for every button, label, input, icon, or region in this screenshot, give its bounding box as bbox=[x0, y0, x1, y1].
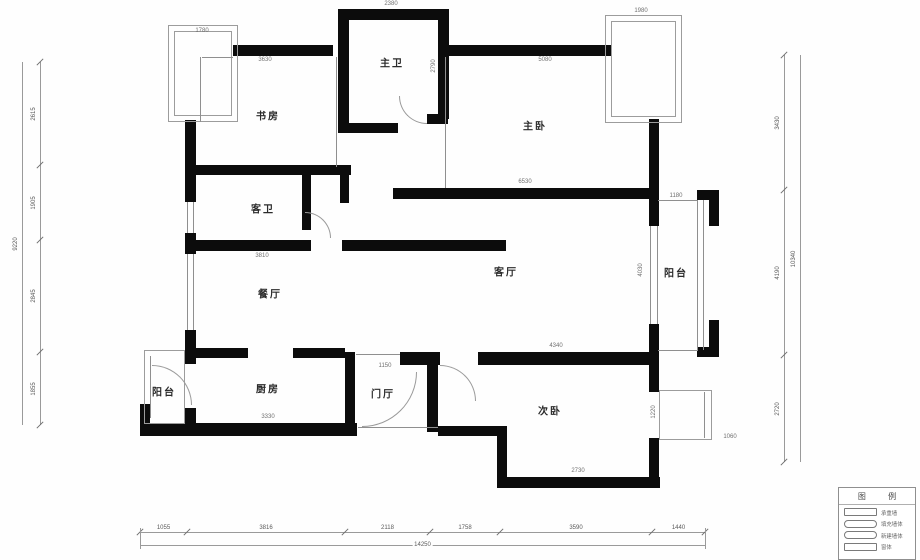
dim-value-left: 2615 bbox=[31, 106, 37, 121]
room-label-balcony-west: 阳台 bbox=[152, 384, 176, 399]
legend-item: 填充墙体 bbox=[839, 517, 915, 529]
dim-value-right: 3430 bbox=[775, 115, 781, 130]
dim-value-bottom: 2118 bbox=[381, 525, 394, 531]
window-outline bbox=[611, 21, 676, 117]
legend-title: 图 例 bbox=[839, 488, 915, 505]
thin-line bbox=[193, 254, 194, 330]
legend-swatch bbox=[844, 543, 877, 551]
dim-note: 1060 bbox=[723, 434, 736, 440]
dim-tick bbox=[780, 458, 787, 465]
dim-note: 1150 bbox=[379, 363, 392, 369]
wall-segment bbox=[649, 356, 659, 392]
thin-line bbox=[445, 57, 446, 188]
dim-value-right: 4190 bbox=[775, 265, 781, 280]
wall-segment bbox=[427, 352, 438, 432]
legend-item-label: 承重墙 bbox=[881, 508, 897, 516]
wall-segment bbox=[443, 45, 612, 56]
wall-segment bbox=[338, 9, 448, 20]
dim-line-left-segments bbox=[40, 62, 41, 425]
dim-value-bottom: 1440 bbox=[672, 525, 685, 531]
thin-line bbox=[200, 57, 201, 122]
dim-line-right-segments bbox=[784, 55, 785, 462]
dim-value-bottom: 1055 bbox=[157, 525, 170, 531]
legend: 图 例 承重墙填充墙体新建墙体窗体 bbox=[838, 487, 916, 560]
wall-segment bbox=[185, 120, 196, 202]
legend-swatch bbox=[844, 508, 877, 516]
dim-total-bottom: 14250 bbox=[412, 542, 433, 548]
wall-segment bbox=[340, 175, 349, 203]
room-label-second-bedroom: 次卧 bbox=[538, 403, 562, 418]
thin-line bbox=[704, 392, 705, 438]
wall-segment bbox=[233, 45, 333, 56]
wall-segment bbox=[649, 438, 659, 488]
legend-rows: 承重墙填充墙体新建墙体窗体 bbox=[839, 505, 915, 551]
dim-value-left: 2845 bbox=[31, 288, 37, 303]
wall-segment bbox=[497, 477, 660, 488]
dim-note: 1220 bbox=[651, 405, 657, 418]
thin-line bbox=[697, 200, 698, 350]
thin-line bbox=[703, 200, 704, 350]
dim-line-right-total bbox=[800, 55, 801, 462]
dim-note: 1180 bbox=[670, 193, 683, 199]
dim-value-bottom: 3590 bbox=[569, 525, 582, 531]
wall-segment bbox=[438, 426, 504, 436]
dim-total-right: 10340 bbox=[791, 249, 797, 268]
dim-note: 2790 bbox=[431, 59, 437, 72]
thin-line bbox=[356, 354, 400, 355]
dim-extension bbox=[140, 528, 141, 549]
thin-line bbox=[193, 202, 194, 233]
dim-value-bottom: 3816 bbox=[259, 525, 272, 531]
legend-item-label: 填充墙体 bbox=[881, 519, 903, 527]
door-swing-arc bbox=[440, 365, 476, 401]
legend-item: 承重墙 bbox=[839, 505, 915, 517]
dim-total-left: 9220 bbox=[13, 236, 19, 251]
dim-note: 1980 bbox=[634, 8, 647, 14]
wall-segment bbox=[478, 352, 659, 365]
dim-value-left: 1905 bbox=[31, 195, 37, 210]
dim-line-bottom-segments bbox=[140, 532, 705, 533]
dim-note: 1780 bbox=[195, 28, 208, 34]
thin-line bbox=[150, 356, 151, 418]
legend-swatch bbox=[844, 520, 877, 528]
legend-item: 新建墙体 bbox=[839, 528, 915, 540]
dim-note: 3810 bbox=[255, 253, 268, 259]
legend-swatch bbox=[844, 531, 877, 539]
thin-line bbox=[658, 200, 698, 201]
thin-line bbox=[336, 57, 337, 167]
room-label-living: 客厅 bbox=[494, 264, 518, 279]
thin-line bbox=[658, 350, 698, 351]
dim-note: 2730 bbox=[571, 468, 584, 474]
room-label-dining: 餐厅 bbox=[258, 286, 282, 301]
dim-value-bottom: 1758 bbox=[458, 525, 471, 531]
wall-segment bbox=[195, 348, 248, 358]
wall-segment bbox=[393, 188, 659, 199]
room-label-master-bedroom: 主卧 bbox=[523, 118, 547, 133]
dim-value-right: 2720 bbox=[775, 401, 781, 416]
legend-item-label: 窗体 bbox=[881, 542, 892, 550]
thin-line bbox=[657, 226, 658, 324]
dim-note: 3630 bbox=[258, 57, 271, 63]
wall-segment bbox=[340, 123, 398, 133]
dim-value-left: 1855 bbox=[31, 381, 37, 396]
dim-line-left-total bbox=[22, 62, 23, 425]
door-swing-arc bbox=[399, 96, 427, 124]
window-outline bbox=[174, 31, 232, 116]
dim-note: 4030 bbox=[638, 263, 644, 276]
door-swing-arc bbox=[305, 212, 331, 238]
room-label-guest-bath: 客卫 bbox=[251, 201, 275, 216]
room-label-kitchen: 厨房 bbox=[256, 381, 280, 396]
dim-note: 3330 bbox=[261, 414, 274, 420]
thin-line bbox=[650, 226, 651, 324]
room-label-master-bath: 主卫 bbox=[380, 55, 404, 70]
wall-segment bbox=[293, 348, 345, 358]
room-label-balcony-east: 阳台 bbox=[664, 265, 688, 280]
wall-segment bbox=[709, 190, 719, 226]
thin-line bbox=[202, 57, 233, 58]
dim-note: 6530 bbox=[518, 179, 531, 185]
thin-line bbox=[187, 202, 188, 233]
wall-segment bbox=[338, 9, 349, 133]
wall-segment bbox=[185, 330, 196, 364]
wall-segment bbox=[438, 9, 449, 119]
floor-plan: 书房主卫主卧客卫餐厅客厅阳台阳台厨房门厅次卧363050806530434038… bbox=[0, 0, 920, 560]
dim-note: 2380 bbox=[384, 1, 397, 7]
dim-extension bbox=[705, 528, 706, 549]
room-label-study: 书房 bbox=[256, 108, 280, 123]
room-label-foyer: 门厅 bbox=[371, 386, 395, 401]
dim-tick bbox=[36, 421, 43, 428]
wall-segment bbox=[185, 165, 351, 175]
legend-item-label: 新建墙体 bbox=[881, 531, 903, 539]
dim-note: 4340 bbox=[549, 343, 562, 349]
wall-segment bbox=[140, 423, 357, 436]
wall-segment bbox=[345, 352, 355, 431]
thin-line bbox=[358, 427, 438, 428]
thin-line bbox=[187, 254, 188, 330]
wall-segment bbox=[697, 347, 719, 357]
dim-note: 5080 bbox=[538, 57, 551, 63]
wall-segment bbox=[342, 240, 506, 251]
wall-segment bbox=[185, 240, 311, 251]
legend-item: 窗体 bbox=[839, 540, 915, 552]
wall-segment bbox=[649, 119, 659, 226]
